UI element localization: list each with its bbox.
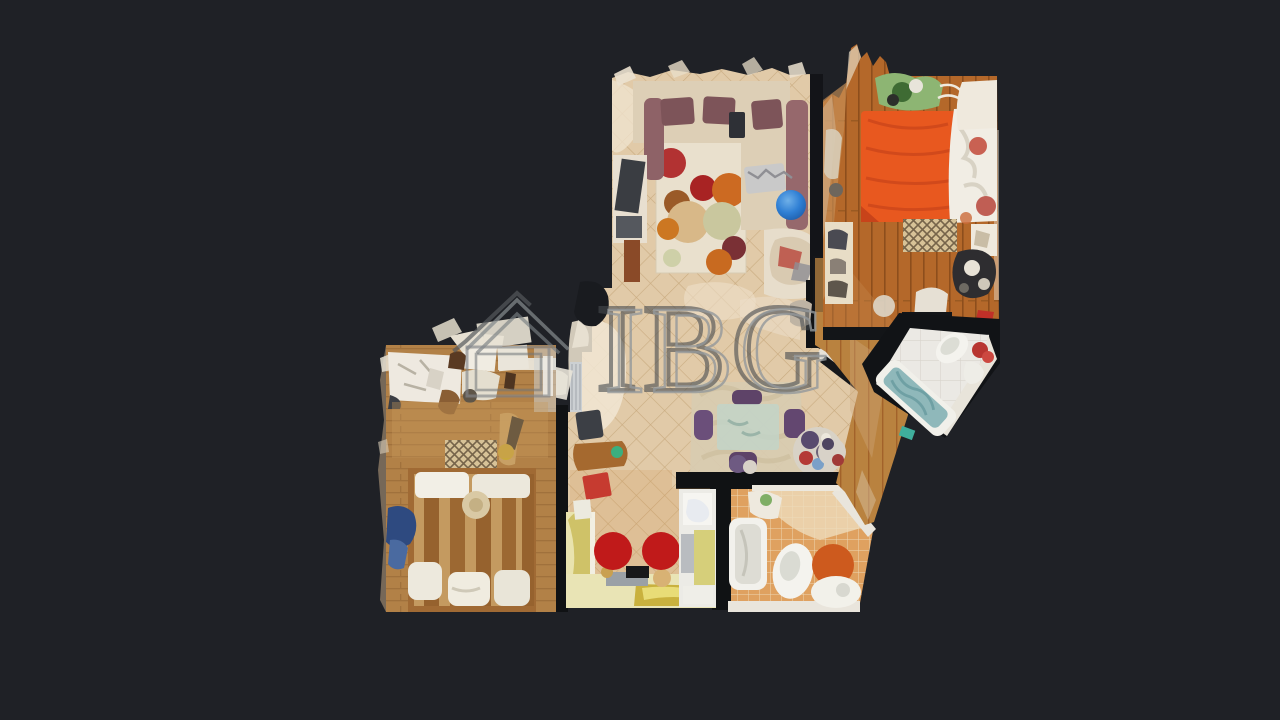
svg-text:IBG: IBG — [604, 282, 834, 420]
